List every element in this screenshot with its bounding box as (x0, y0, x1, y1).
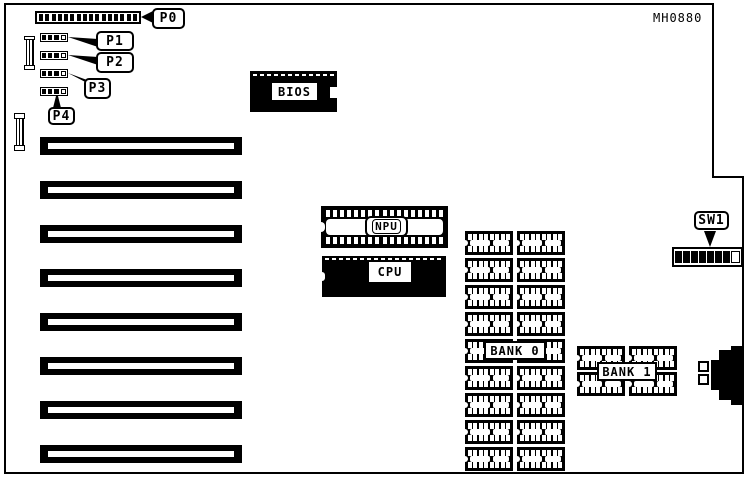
socket-slot (545, 375, 561, 381)
pin (333, 237, 337, 244)
connector-pad (698, 374, 709, 385)
socket-slot (545, 321, 561, 327)
memory-chip (465, 366, 513, 390)
pin (390, 237, 394, 244)
pin (347, 237, 351, 244)
chip-notch (322, 272, 325, 281)
pin-row (468, 381, 510, 387)
pin (542, 369, 546, 375)
pin-row (468, 300, 510, 306)
pin (506, 408, 510, 414)
socket-slot (522, 321, 542, 327)
pin (591, 387, 595, 393)
keyboard-connector-neck (711, 360, 720, 390)
socket-slot (493, 375, 509, 381)
pin-row (520, 273, 562, 279)
pin (542, 408, 546, 414)
memory-chip (465, 312, 513, 336)
pin (542, 327, 546, 333)
pin (479, 408, 483, 414)
memory-chip (517, 366, 565, 390)
pin (536, 273, 540, 279)
pin (490, 315, 494, 321)
bios-chip: BIOS (250, 71, 337, 112)
pin (490, 396, 494, 402)
pin (468, 381, 472, 387)
pin-block (42, 89, 46, 94)
pin-block (42, 35, 46, 40)
pin (473, 246, 477, 252)
pin (525, 273, 529, 279)
bios-label: BIOS (272, 83, 317, 100)
pin (501, 273, 505, 279)
bank1-label: BANK 1 (597, 362, 657, 381)
pin (525, 327, 529, 333)
pin (525, 381, 529, 387)
pin (580, 387, 584, 393)
pin (542, 396, 546, 402)
pin-block (42, 53, 46, 58)
socket-slot (522, 375, 542, 381)
pin (665, 361, 669, 367)
pin-row (520, 300, 562, 306)
dip-switch-cell (723, 251, 730, 263)
pin (547, 381, 551, 387)
pin (558, 408, 562, 414)
pin (45, 14, 49, 21)
pin-row (326, 237, 443, 244)
pin (659, 387, 663, 393)
pin (542, 423, 546, 429)
pin (83, 14, 87, 21)
memory-chip (465, 231, 513, 255)
pin (484, 327, 488, 333)
pin (547, 354, 551, 360)
pin (542, 246, 546, 252)
socket-slot (493, 456, 509, 462)
dip-switch-cell (707, 251, 714, 263)
pin (558, 381, 562, 387)
pin (558, 273, 562, 279)
pin (501, 381, 505, 387)
pin-row (520, 381, 562, 387)
pin (501, 246, 505, 252)
pin (553, 300, 557, 306)
pin (468, 408, 472, 414)
pin (495, 300, 499, 306)
socket-slot (545, 402, 561, 408)
pin (473, 327, 477, 333)
pin (484, 273, 488, 279)
socket-slot (522, 294, 542, 300)
pin (495, 435, 499, 441)
socket-slot (545, 294, 561, 300)
pin (670, 361, 674, 367)
pin (558, 462, 562, 468)
socket-slot (545, 429, 561, 435)
keyboard-connector (719, 350, 743, 400)
pin (558, 300, 562, 306)
pin (495, 462, 499, 468)
pin (542, 381, 546, 387)
pin (473, 408, 477, 414)
pin (542, 300, 546, 306)
memory-chip (517, 285, 565, 309)
pin (536, 435, 540, 441)
pin (468, 273, 472, 279)
cpu-chip: CPU (322, 256, 446, 297)
pin (479, 246, 483, 252)
pin (58, 14, 62, 21)
pin (637, 387, 641, 393)
pin (542, 273, 546, 279)
pin (602, 387, 606, 393)
socket-slot (470, 402, 490, 408)
motherboard-diagram: BIOS NPU CPU BANK 0 BANK 1 MH0880 P0 P1 … (0, 0, 748, 481)
pin (553, 408, 557, 414)
pin-1-marker (61, 71, 66, 76)
pin (558, 354, 562, 360)
pin (495, 246, 499, 252)
pin (506, 435, 510, 441)
pin (501, 462, 505, 468)
pin (531, 273, 535, 279)
pin (643, 387, 647, 393)
pin (39, 14, 43, 21)
pin-block (54, 71, 59, 76)
pin (473, 300, 477, 306)
pin (520, 327, 524, 333)
socket-slot (634, 381, 654, 387)
sw1-dip-switch (672, 247, 743, 267)
keyboard-connector-step (731, 399, 743, 405)
pin (397, 237, 401, 244)
pin (490, 288, 494, 294)
chip-notch (330, 87, 337, 98)
pin (484, 246, 488, 252)
socket-slot (522, 456, 542, 462)
pin (425, 210, 429, 217)
pin (484, 435, 488, 441)
socket-slot (493, 321, 509, 327)
cpu-label: CPU (369, 262, 411, 282)
memory-chip (465, 285, 513, 309)
dip-switch-cell (683, 251, 690, 263)
socket-slot (545, 456, 561, 462)
pin (553, 327, 557, 333)
pin-row (468, 435, 510, 441)
pin (553, 462, 557, 468)
pin (479, 300, 483, 306)
pin-row (520, 327, 562, 333)
pin (596, 387, 600, 393)
pin (120, 14, 124, 21)
axial-component-2 (14, 113, 25, 151)
pin (490, 300, 494, 306)
pin (520, 300, 524, 306)
pin (632, 387, 636, 393)
pin (506, 462, 510, 468)
socket-slot (522, 402, 542, 408)
pin-block (54, 35, 59, 40)
socket-slot (582, 355, 602, 361)
pin-block (42, 71, 46, 76)
pin (490, 462, 494, 468)
bank0-label: BANK 0 (484, 341, 546, 360)
pin (520, 462, 524, 468)
pin (439, 237, 443, 244)
callout-p2: P2 (96, 52, 134, 73)
pin (418, 237, 422, 244)
pin (490, 369, 494, 375)
pin (490, 261, 494, 267)
pin (490, 246, 494, 252)
pin (490, 234, 494, 240)
pin (558, 246, 562, 252)
pin (525, 246, 529, 252)
pin-row (520, 462, 562, 468)
chip-notch (321, 222, 325, 232)
pin (542, 288, 546, 294)
pin (468, 435, 472, 441)
pin-row (580, 387, 622, 393)
pin (484, 381, 488, 387)
socket-slot (545, 240, 561, 246)
socket-slot (657, 381, 673, 387)
socket-slot (493, 402, 509, 408)
socket-slot (522, 429, 542, 435)
pin (553, 246, 557, 252)
pin (536, 462, 540, 468)
pin (547, 408, 551, 414)
pin (479, 354, 483, 360)
npu-label-box: NPU (365, 216, 408, 237)
pin (490, 273, 494, 279)
connector-p0 (35, 11, 141, 24)
pin (659, 361, 663, 367)
pin (326, 210, 330, 217)
pin-block (48, 35, 52, 40)
pin (525, 408, 529, 414)
pin-row (520, 246, 562, 252)
pin (558, 435, 562, 441)
pin (506, 300, 510, 306)
pin (425, 237, 429, 244)
pin (95, 14, 99, 21)
pin (585, 361, 589, 367)
component-body (26, 40, 34, 65)
pin (553, 273, 557, 279)
socket-slot (657, 355, 673, 361)
pin (654, 349, 658, 355)
keyboard-connector-step (731, 346, 743, 351)
pin (501, 435, 505, 441)
pin (536, 327, 540, 333)
pin (484, 300, 488, 306)
pin (411, 237, 415, 244)
memory-chip (465, 393, 513, 417)
component-body (16, 119, 24, 145)
pin-1-marker (61, 89, 66, 94)
pin (531, 246, 535, 252)
pin (354, 237, 358, 244)
pin (542, 450, 546, 456)
pin (531, 300, 535, 306)
pin (484, 408, 488, 414)
memory-chip (517, 447, 565, 471)
pin (665, 387, 669, 393)
pin (114, 14, 118, 21)
pin (368, 237, 372, 244)
pin (506, 327, 510, 333)
pin (333, 210, 337, 217)
pin (542, 462, 546, 468)
socket-slot (634, 355, 654, 361)
callout-p1: P1 (96, 31, 134, 51)
axial-component-1 (24, 36, 35, 70)
memory-chip (517, 393, 565, 417)
connector-pad (698, 361, 709, 372)
pin (531, 408, 535, 414)
memory-chip (465, 420, 513, 444)
pin (354, 210, 358, 217)
callout-p4: P4 (48, 107, 75, 125)
pin (542, 261, 546, 267)
pin (490, 450, 494, 456)
npu-label: NPU (372, 219, 401, 234)
pin (602, 349, 606, 355)
pin (536, 408, 540, 414)
pin-block (48, 71, 52, 76)
pin (326, 237, 330, 244)
pin (102, 14, 106, 21)
pin (411, 210, 415, 217)
pin (520, 381, 524, 387)
pin (361, 210, 365, 217)
pin (547, 300, 551, 306)
pin (479, 273, 483, 279)
pin (531, 327, 535, 333)
socket-slot (470, 456, 490, 462)
socket-slot (522, 240, 542, 246)
socket-slot (470, 375, 490, 381)
pin (490, 327, 494, 333)
pin (479, 381, 483, 387)
pin-block (54, 89, 59, 94)
pin (506, 381, 510, 387)
pin (520, 273, 524, 279)
pin (547, 273, 551, 279)
pin (520, 246, 524, 252)
pin (127, 14, 131, 21)
callout-p0: P0 (152, 8, 185, 29)
callout-p3: P3 (84, 78, 111, 99)
socket-slot (493, 267, 509, 273)
memory-chip (465, 258, 513, 282)
pin (468, 300, 472, 306)
pin-row (632, 387, 674, 393)
pin-row (520, 408, 562, 414)
socket-slot (522, 267, 542, 273)
pin (553, 354, 557, 360)
pin (558, 327, 562, 333)
pin-row (468, 273, 510, 279)
connector-p4 (40, 87, 68, 96)
connector-p2 (40, 51, 68, 60)
socket-slot (470, 294, 490, 300)
socket-slot (470, 267, 490, 273)
pin (501, 327, 505, 333)
chip-pin1-dashline (325, 258, 443, 260)
pin-block (48, 53, 52, 58)
socket-slot (605, 381, 621, 387)
socket-slot (545, 348, 561, 354)
dip-switch-cell (675, 251, 682, 263)
socket-slot (470, 321, 490, 327)
pin (473, 462, 477, 468)
pin (531, 435, 535, 441)
pin (536, 381, 540, 387)
memory-chip (517, 420, 565, 444)
pin (361, 237, 365, 244)
pin (580, 361, 584, 367)
pin (501, 300, 505, 306)
pin (490, 381, 494, 387)
pin (404, 237, 408, 244)
pin-row (468, 246, 510, 252)
pin (52, 14, 56, 21)
dip-switch-cell (691, 251, 698, 263)
pin (479, 462, 483, 468)
pin-row (468, 327, 510, 333)
pin (607, 387, 611, 393)
pin (479, 327, 483, 333)
pin (547, 435, 551, 441)
pin (525, 300, 529, 306)
pin (553, 435, 557, 441)
pin (439, 210, 443, 217)
pin (490, 435, 494, 441)
pin (340, 210, 344, 217)
connector-p3 (40, 69, 68, 78)
pin (484, 462, 488, 468)
pin (418, 210, 422, 217)
memory-chip (517, 312, 565, 336)
pin-row (520, 435, 562, 441)
pin (585, 387, 589, 393)
pin (531, 462, 535, 468)
pin (432, 210, 436, 217)
socket-slot (470, 240, 490, 246)
pin (468, 327, 472, 333)
pin (490, 408, 494, 414)
memory-chip (517, 258, 565, 282)
pin (375, 237, 379, 244)
pin (536, 300, 540, 306)
pin (547, 246, 551, 252)
component-cap (14, 145, 25, 151)
pin (468, 462, 472, 468)
pin (495, 408, 499, 414)
pin (495, 381, 499, 387)
pin (495, 273, 499, 279)
pin (547, 327, 551, 333)
pin (495, 327, 499, 333)
pin (670, 387, 674, 393)
pin (468, 246, 472, 252)
part-number-label: MH0880 (653, 11, 702, 25)
pin (618, 387, 622, 393)
